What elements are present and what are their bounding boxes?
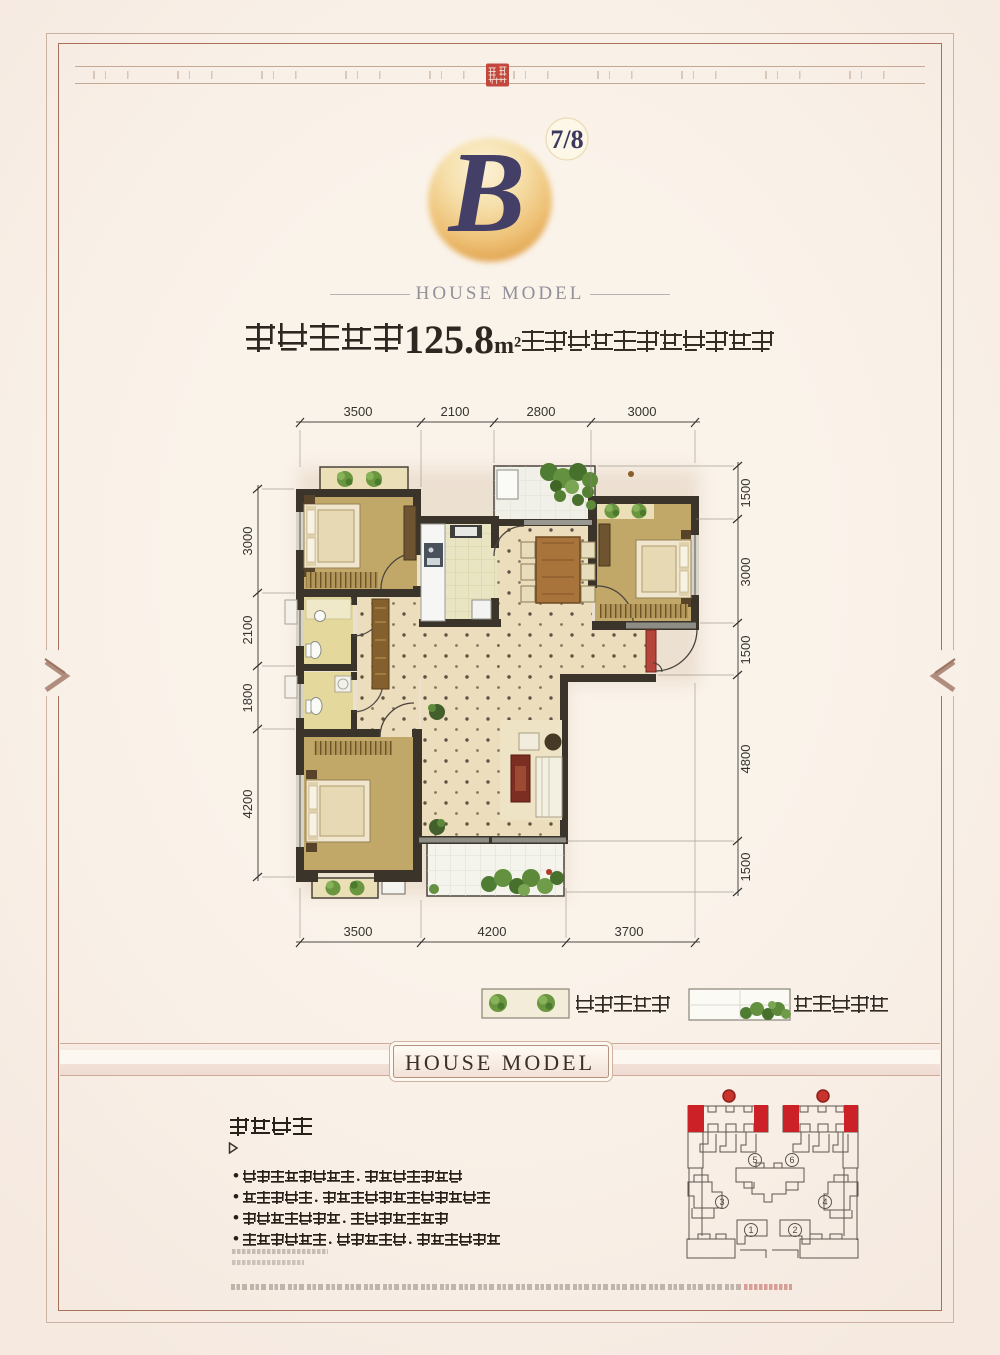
svg-text:1800: 1800 (240, 684, 255, 713)
svg-text:3500: 3500 (344, 924, 373, 939)
svg-text:2: 2 (792, 1225, 797, 1235)
svg-text:5: 5 (752, 1155, 757, 1165)
svg-text:3000: 3000 (738, 558, 753, 587)
svg-text:3000: 3000 (240, 527, 255, 556)
svg-text:3: 3 (719, 1197, 724, 1207)
svg-text:2100: 2100 (441, 404, 470, 419)
svg-text:3500: 3500 (344, 404, 373, 419)
svg-text:2800: 2800 (527, 404, 556, 419)
svg-text:1500: 1500 (738, 636, 753, 665)
svg-text:1: 1 (748, 1225, 753, 1235)
svg-text:2100: 2100 (240, 616, 255, 645)
svg-text:4200: 4200 (240, 790, 255, 819)
svg-text:1500: 1500 (738, 479, 753, 508)
svg-text:3000: 3000 (628, 404, 657, 419)
svg-text:3700: 3700 (615, 924, 644, 939)
svg-text:4200: 4200 (478, 924, 507, 939)
svg-text:1500: 1500 (738, 853, 753, 882)
svg-text:4800: 4800 (738, 745, 753, 774)
svg-text:6: 6 (789, 1155, 794, 1165)
svg-text:4: 4 (822, 1197, 827, 1207)
